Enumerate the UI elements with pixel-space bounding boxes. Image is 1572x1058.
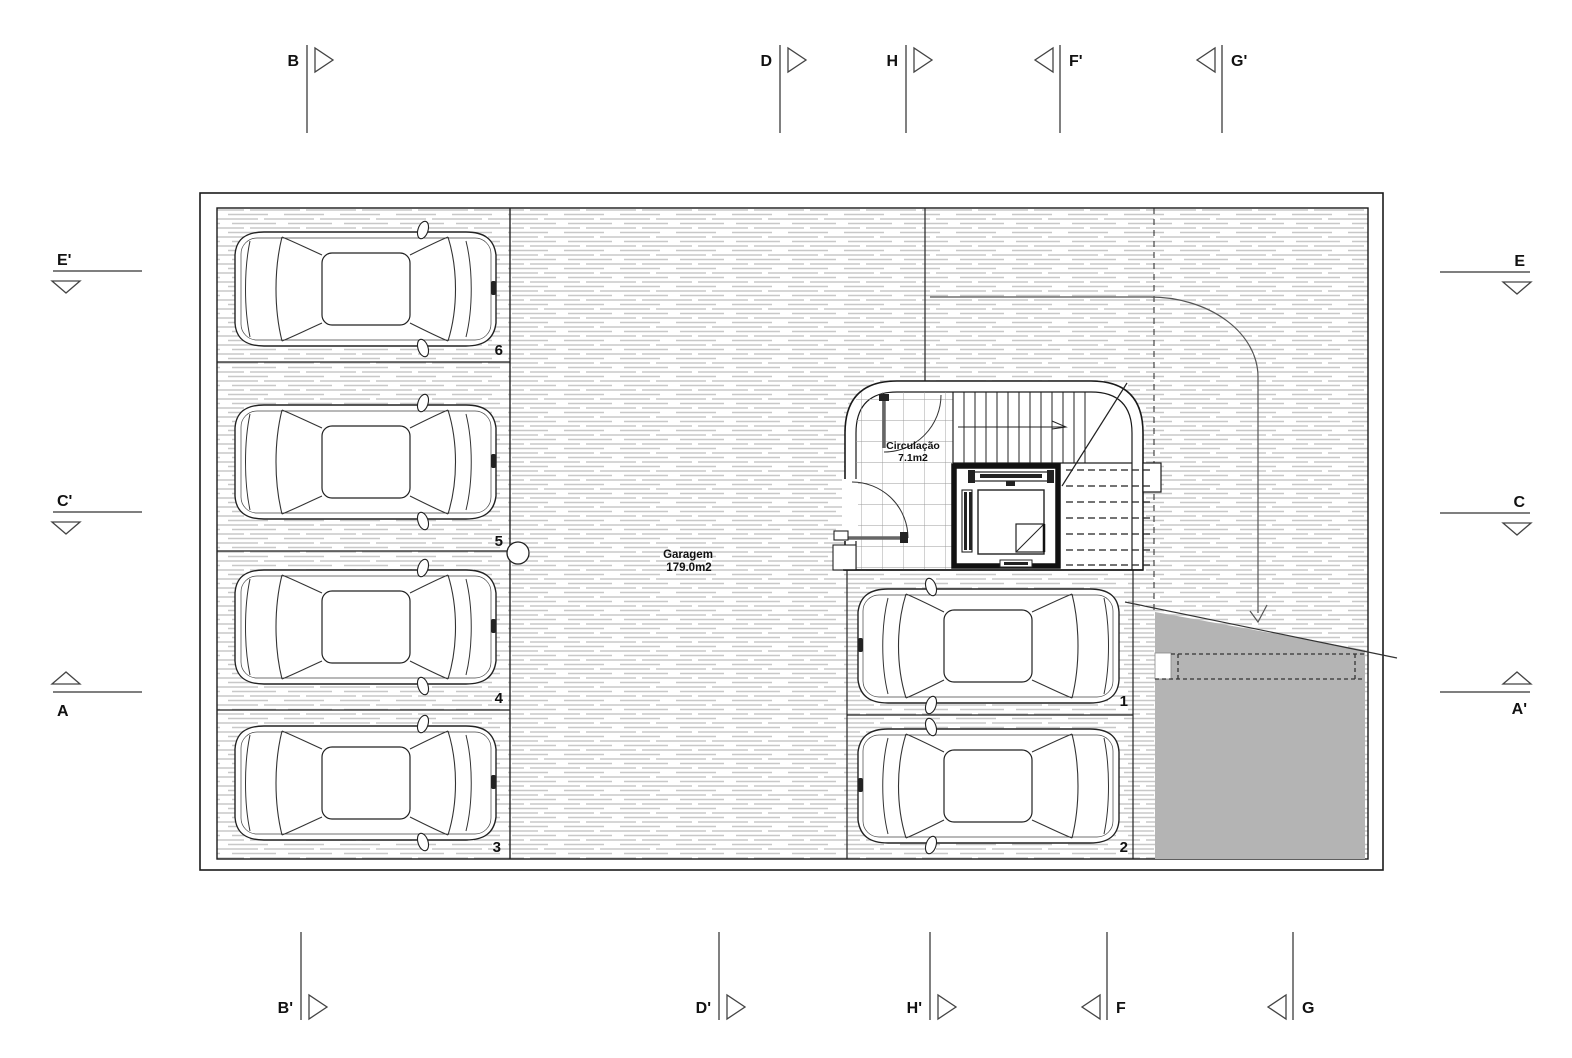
section-arrow-icon xyxy=(52,281,80,293)
section-label: F xyxy=(1116,1000,1126,1017)
circulation-room-area: 7.1m2 xyxy=(898,452,928,464)
section-marker-a: A xyxy=(52,672,142,720)
section-label: H xyxy=(886,53,898,70)
section-marker-e: E xyxy=(1440,253,1531,294)
section-marker-h-prime: H' xyxy=(907,932,956,1020)
section-arrow-icon xyxy=(1035,48,1053,72)
section-marker-g: G xyxy=(1268,932,1314,1020)
car-space-4 xyxy=(235,558,496,696)
entry-ramp xyxy=(1155,612,1365,859)
floorplan-page: { "rooms": { "garage": { "name": "Garage… xyxy=(0,0,1572,1058)
section-arrow-icon xyxy=(938,995,956,1019)
section-arrow-icon xyxy=(727,995,745,1019)
car-space-1 xyxy=(858,577,1119,715)
car-space-6 xyxy=(235,220,496,358)
section-arrow-icon xyxy=(1503,523,1531,535)
section-label: D xyxy=(760,53,772,70)
stair-core xyxy=(833,381,1161,570)
wall-pilaster xyxy=(1143,463,1161,492)
section-arrow-icon xyxy=(1503,282,1531,294)
section-marker-a-prime: A' xyxy=(1440,672,1531,718)
section-marker-e-prime: E' xyxy=(52,252,142,293)
section-label: A' xyxy=(1512,701,1527,718)
section-label: E' xyxy=(57,252,71,269)
section-label: A xyxy=(57,703,69,720)
car-space-3 xyxy=(235,714,496,852)
section-marker-d-prime: D' xyxy=(696,932,745,1020)
section-arrow-icon xyxy=(1503,672,1531,684)
section-marker-c: C xyxy=(1440,494,1531,535)
section-arrow-icon xyxy=(1268,995,1286,1019)
structural-column xyxy=(507,542,529,564)
parking-space-number: 4 xyxy=(495,690,504,707)
circulation-room-name: Circulação xyxy=(886,440,940,452)
section-arrow-icon xyxy=(52,522,80,534)
section-label: C xyxy=(1513,494,1525,511)
section-marker-c-prime: C' xyxy=(52,493,142,534)
parking-space-number: 2 xyxy=(1120,839,1128,856)
section-marker-b-prime: B' xyxy=(278,932,327,1020)
circulation-tile-floor xyxy=(856,392,953,570)
section-marker-h: H xyxy=(886,45,932,133)
section-label: G xyxy=(1302,1000,1314,1017)
section-label: D' xyxy=(696,1000,711,1017)
section-arrow-icon xyxy=(1082,995,1100,1019)
car-space-2 xyxy=(858,717,1119,855)
section-marker-f-prime: F' xyxy=(1035,45,1083,133)
section-arrow-icon xyxy=(914,48,932,72)
parking-space-number: 6 xyxy=(495,342,503,359)
section-arrow-icon xyxy=(1197,48,1215,72)
parking-space-number: 1 xyxy=(1120,693,1128,710)
section-label: E xyxy=(1514,253,1525,270)
section-marker-g-prime: G' xyxy=(1197,45,1247,133)
section-label: H' xyxy=(907,1000,922,1017)
section-arrow-icon xyxy=(315,48,333,72)
section-arrow-icon xyxy=(309,995,327,1019)
elevator xyxy=(954,466,1058,567)
section-marker-b: B xyxy=(287,45,333,133)
section-marker-d: D xyxy=(760,45,806,133)
parking-space-number: 5 xyxy=(495,533,503,550)
section-label: C' xyxy=(57,493,72,510)
section-arrow-icon xyxy=(788,48,806,72)
section-label: G' xyxy=(1231,53,1247,70)
garage-floor-plan: Garagem 179.0m2 Circulação 7.1m2 6 5 4 3… xyxy=(0,0,1572,1058)
car-space-5 xyxy=(235,393,496,531)
section-label: B' xyxy=(278,1000,293,1017)
section-label: F' xyxy=(1069,53,1083,70)
section-label: B xyxy=(287,53,299,70)
elevator-counterweight xyxy=(962,490,972,552)
garage-room-name: Garagem xyxy=(663,549,713,561)
garage-room-area: 179.0m2 xyxy=(666,562,711,574)
parking-space-number: 3 xyxy=(493,839,501,856)
section-arrow-icon xyxy=(52,672,80,684)
section-marker-f: F xyxy=(1082,932,1126,1020)
